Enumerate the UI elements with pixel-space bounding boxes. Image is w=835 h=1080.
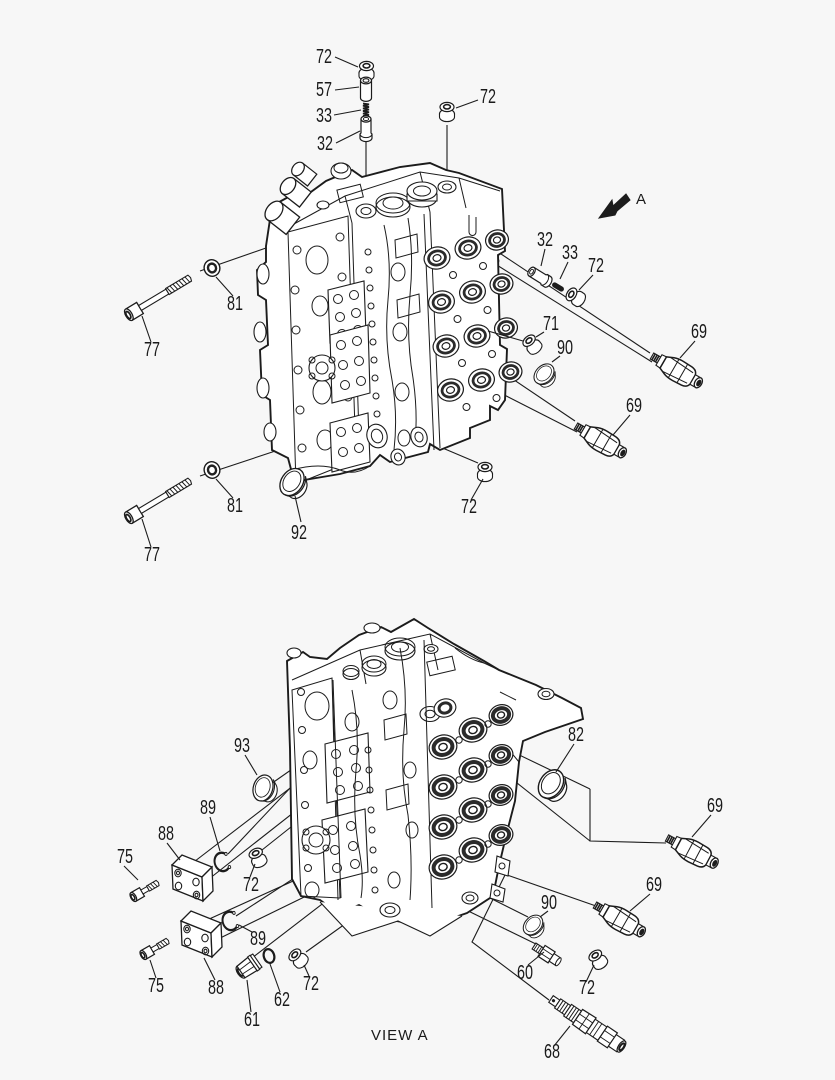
svg-text:77: 77 bbox=[144, 544, 160, 566]
svg-text:72: 72 bbox=[461, 496, 477, 518]
svg-text:69: 69 bbox=[691, 321, 707, 343]
svg-text:VIEW A: VIEW A bbox=[371, 1027, 429, 1044]
svg-text:61: 61 bbox=[244, 1009, 260, 1031]
svg-text:33: 33 bbox=[562, 242, 578, 264]
svg-text:75: 75 bbox=[148, 975, 164, 997]
svg-text:A: A bbox=[636, 191, 646, 208]
svg-text:62: 62 bbox=[274, 989, 290, 1011]
svg-text:89: 89 bbox=[250, 928, 266, 950]
svg-text:72: 72 bbox=[316, 46, 332, 68]
svg-text:88: 88 bbox=[208, 977, 224, 999]
svg-text:90: 90 bbox=[557, 337, 573, 359]
svg-text:57: 57 bbox=[316, 79, 332, 101]
svg-text:72: 72 bbox=[480, 86, 496, 108]
svg-text:89: 89 bbox=[200, 797, 216, 819]
svg-text:93: 93 bbox=[234, 735, 250, 757]
svg-text:88: 88 bbox=[158, 823, 174, 845]
svg-text:69: 69 bbox=[626, 395, 642, 417]
svg-text:68: 68 bbox=[544, 1041, 560, 1063]
svg-text:71: 71 bbox=[543, 313, 559, 335]
svg-text:60: 60 bbox=[517, 962, 533, 984]
svg-text:81: 81 bbox=[227, 293, 243, 315]
svg-text:81: 81 bbox=[227, 495, 243, 517]
svg-text:32: 32 bbox=[537, 229, 553, 251]
svg-text:69: 69 bbox=[707, 795, 723, 817]
svg-text:90: 90 bbox=[541, 892, 557, 914]
svg-text:75: 75 bbox=[117, 846, 133, 868]
svg-text:82: 82 bbox=[568, 724, 584, 746]
svg-text:72: 72 bbox=[303, 973, 319, 995]
svg-text:72: 72 bbox=[588, 255, 604, 277]
svg-text:33: 33 bbox=[316, 105, 332, 127]
svg-text:32: 32 bbox=[317, 133, 333, 155]
svg-text:92: 92 bbox=[291, 522, 307, 544]
svg-text:77: 77 bbox=[144, 339, 160, 361]
svg-text:69: 69 bbox=[646, 874, 662, 896]
svg-text:72: 72 bbox=[243, 874, 259, 896]
